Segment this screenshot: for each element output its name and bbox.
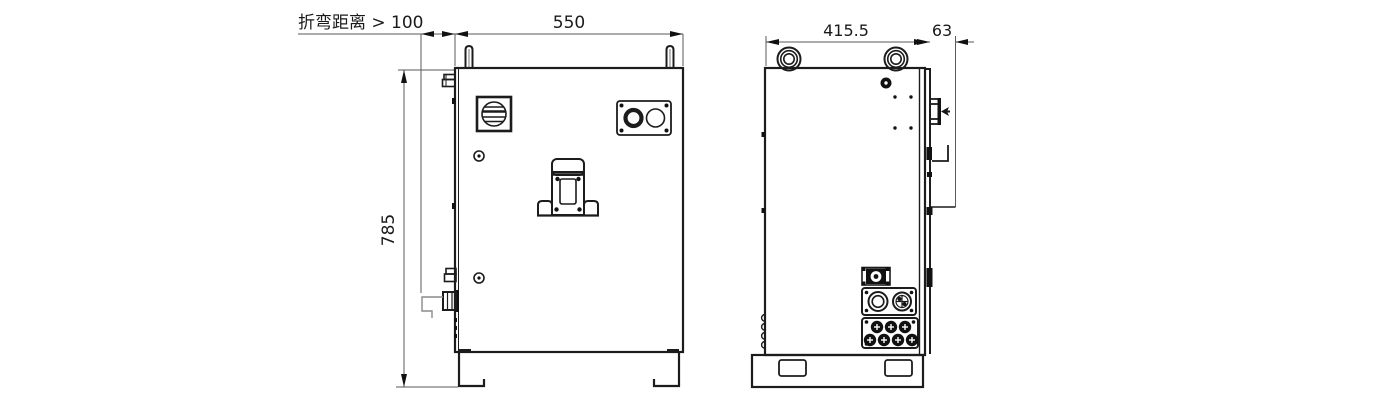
door-lock-handle <box>537 159 599 216</box>
door-screw-bottom <box>474 273 484 283</box>
lifting-post-right <box>667 46 674 68</box>
cable-gland-large <box>443 290 459 312</box>
door-handle-profile <box>930 98 950 125</box>
handle-depth-label: 63 <box>932 21 952 40</box>
dimension-labels: 折弯距离 > 100 550 785 415.5 63 <box>298 13 952 246</box>
round-connector-plate <box>862 288 916 315</box>
cabinet-side-outline <box>765 68 925 355</box>
bent-cable <box>422 297 443 318</box>
front-view <box>422 46 683 386</box>
base-bracket-side <box>752 355 923 387</box>
rotary-main-switch <box>477 97 511 131</box>
lifting-post-left <box>466 46 473 68</box>
hinge-pin-mid <box>452 203 456 209</box>
fan-plate <box>862 267 891 286</box>
drawing-canvas: 折弯距离 > 100 550 785 415.5 63 <box>0 0 1400 420</box>
hinge-pins-bottom <box>454 318 457 338</box>
height-label: 785 <box>379 214 399 246</box>
vent-hole <box>881 78 892 89</box>
door-screw-top <box>474 151 484 161</box>
hinge-pin-top <box>452 98 456 104</box>
width-label: 550 <box>553 13 585 33</box>
side-view <box>752 48 956 388</box>
bend-distance-label: 折弯距离 > 100 <box>298 13 424 33</box>
cable-gland-top <box>443 75 456 87</box>
depth-label: 415.5 <box>823 21 869 40</box>
technical-drawing: 折弯距离 > 100 550 785 415.5 63 <box>0 0 1400 420</box>
multi-pin-connector-plate <box>862 318 918 348</box>
handle-screws <box>554 177 581 212</box>
dimension-layer <box>298 34 974 387</box>
mounting-holes <box>893 95 912 129</box>
indicator-button-plate <box>617 101 671 135</box>
mounting-feet-front <box>459 351 679 386</box>
